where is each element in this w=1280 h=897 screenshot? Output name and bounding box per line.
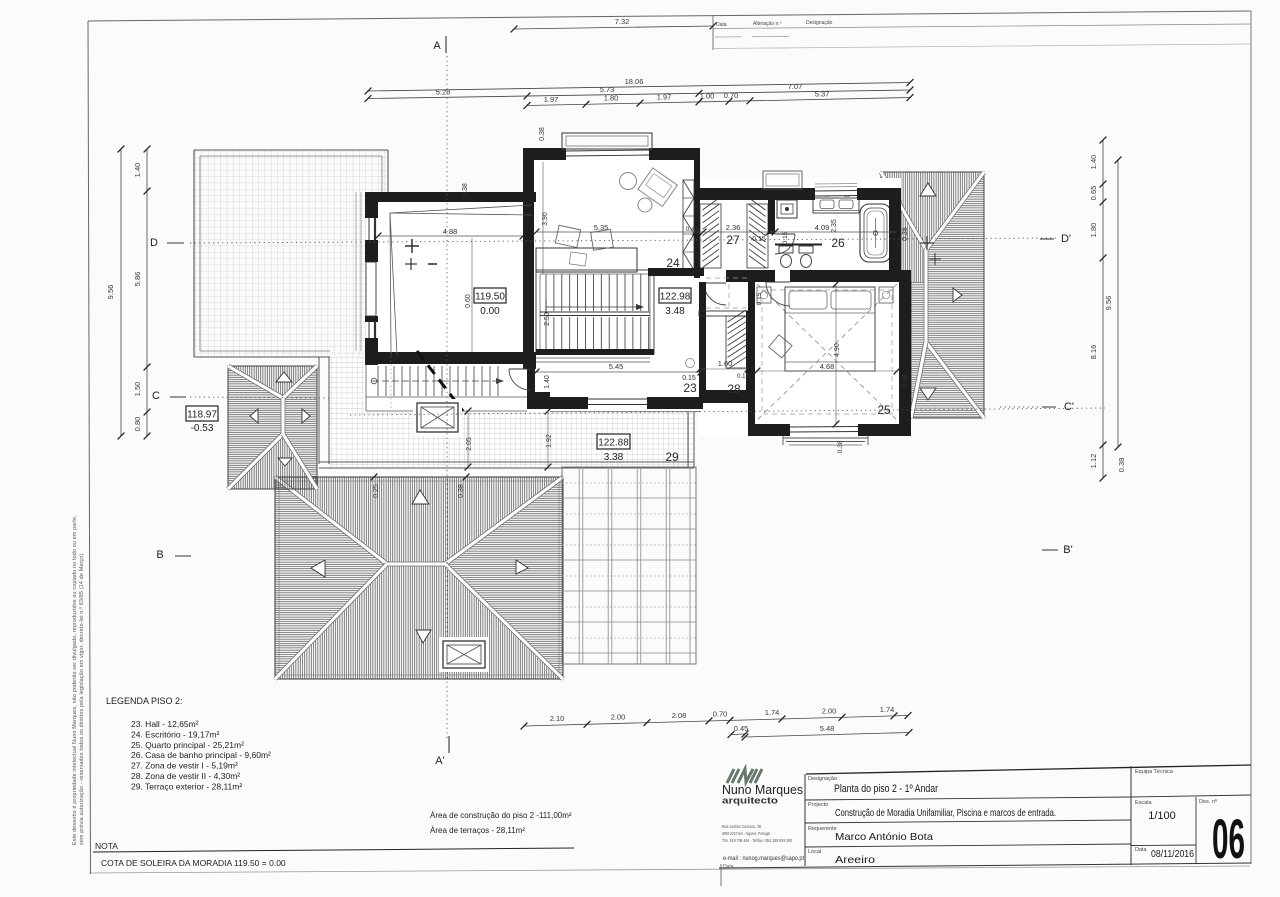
svg-text:5.35: 5.35 (594, 223, 609, 232)
svg-text:1.50: 1.50 (133, 382, 142, 397)
svg-text:-0.53: -0.53 (191, 423, 214, 434)
svg-text:9.56: 9.56 (1104, 296, 1113, 311)
svg-text:0.45: 0.45 (734, 724, 749, 733)
svg-text:0.65: 0.65 (1089, 186, 1098, 201)
svg-text:C: C (152, 390, 160, 402)
svg-text:28: 28 (727, 382, 741, 396)
svg-text:0.15: 0.15 (752, 236, 766, 243)
svg-text:25: 25 (877, 403, 891, 417)
svg-text:06: 06 (1212, 807, 1245, 870)
svg-text:0.38: 0.38 (1117, 458, 1126, 473)
svg-text:8000-233 Faro - Algarve, Portu: 8000-233 Faro - Algarve, Portugal (722, 831, 770, 837)
svg-text:NOTA: NOTA (95, 841, 118, 851)
svg-text:1.92: 1.92 (546, 434, 553, 448)
svg-text:Projecto: Projecto (808, 802, 828, 808)
svg-text:7.07: 7.07 (788, 82, 803, 91)
svg-text:2.08: 2.08 (672, 711, 687, 720)
svg-text:Designação: Designação (806, 20, 833, 26)
svg-text:1.40: 1.40 (544, 375, 551, 389)
svg-text:Rua Justino Cúmano, 39: Rua Justino Cúmano, 39 (722, 824, 761, 830)
svg-text:26: 26 (831, 236, 845, 250)
svg-text:0.38: 0.38 (462, 183, 469, 197)
svg-text:1.60: 1.60 (718, 359, 733, 368)
svg-text:Este desenho é propriedade int: Este desenho é propriedade intelectual N… (72, 515, 78, 845)
svg-text:0.38: 0.38 (902, 374, 909, 388)
svg-text:27. Zona de vestir I - 5,19m²: 27. Zona de vestir I - 5,19m² (131, 761, 238, 771)
svg-text:1.40: 1.40 (1089, 155, 1098, 170)
svg-text:2.05: 2.05 (466, 437, 473, 451)
svg-text:5.45: 5.45 (609, 362, 624, 371)
svg-text:B': B' (1063, 544, 1072, 556)
svg-text:28. Zona de vestir II - 4,30m²: 28. Zona de vestir II - 4,30m² (131, 771, 240, 781)
svg-text:Areeiro: Areeiro (835, 854, 875, 866)
svg-text:1.12: 1.12 (1089, 454, 1098, 469)
svg-text:0.38: 0.38 (458, 484, 465, 498)
svg-text:Equipa Técnica: Equipa Técnica (1135, 769, 1174, 775)
svg-text:23. Hall - 12,65m²: 23. Hall - 12,65m² (131, 719, 199, 729)
svg-text:Área de terraços - 28,11m²: Área de terraços - 28,11m² (430, 826, 525, 835)
svg-text:1/100: 1/100 (1148, 810, 1176, 822)
svg-text:Data: Data (1135, 847, 1148, 853)
svg-text:Designação: Designação (808, 776, 837, 782)
svg-text:Planta do piso 2 - 1º Andar: Planta do piso 2 - 1º Andar (834, 783, 938, 795)
svg-text:2.00: 2.00 (822, 707, 837, 716)
svg-text:1.40: 1.40 (133, 163, 142, 178)
svg-text:0.48: 0.48 (686, 226, 699, 233)
svg-text:0.18: 0.18 (737, 374, 749, 380)
svg-text:1.74: 1.74 (765, 708, 780, 717)
svg-text:0.70: 0.70 (724, 91, 739, 100)
svg-text:Local: Local (808, 849, 821, 855)
svg-text:24. Escritório - 19,17m²: 24. Escritório - 19,17m² (131, 729, 220, 739)
svg-text:Requerente: Requerente (808, 826, 837, 832)
svg-text:122.88: 122.88 (598, 438, 629, 449)
svg-text:D: D (150, 237, 158, 249)
svg-text:Data: Data (723, 864, 734, 870)
svg-text:29. Terraço exterior - 28,11m²: 29. Terraço exterior - 28,11m² (131, 781, 242, 791)
svg-text:Construção de Moradia Unifamil: Construção de Moradia Unifamiliar, Pisci… (835, 807, 1056, 819)
svg-text:23: 23 (683, 381, 697, 395)
svg-text:C': C' (1064, 401, 1074, 413)
svg-text:0.15: 0.15 (782, 231, 789, 244)
svg-text:Des. nº: Des. nº (1199, 798, 1217, 805)
svg-text:5.73: 5.73 (600, 85, 615, 94)
svg-text:0.15: 0.15 (682, 375, 696, 382)
svg-text:1.97: 1.97 (657, 93, 672, 102)
svg-text:arquitecto: arquitecto (722, 796, 778, 807)
svg-text:24: 24 (666, 256, 680, 270)
svg-text:0.15: 0.15 (756, 292, 763, 305)
svg-text:1.80: 1.80 (1089, 223, 1098, 238)
svg-text:0.38: 0.38 (837, 440, 844, 453)
svg-text:2.10: 2.10 (550, 714, 565, 723)
svg-text:1.97: 1.97 (544, 95, 559, 104)
svg-text:4.88: 4.88 (443, 227, 458, 236)
svg-text:4.68: 4.68 (820, 362, 835, 371)
svg-text:0.60: 0.60 (465, 294, 472, 308)
svg-text:3.48: 3.48 (665, 306, 685, 317)
svg-text:2.35: 2.35 (831, 219, 838, 233)
svg-text:3.90: 3.90 (542, 212, 549, 226)
svg-text:4.90: 4.90 (834, 343, 841, 357)
svg-text:Escala: Escala (1135, 800, 1152, 806)
svg-text:B: B (156, 549, 163, 561)
svg-text:119.50: 119.50 (475, 292, 505, 303)
svg-text:Alteração n.º: Alteração n.º (753, 21, 782, 27)
svg-text:08/11/2016: 08/11/2016 (1151, 849, 1194, 860)
svg-text:Tlm. 916 796 464 - Tel/fax +35: Tlm. 916 796 464 - Tel/fax +351 289 829 … (722, 838, 792, 844)
svg-text:1.00: 1.00 (700, 92, 715, 101)
svg-text:Área de construção do piso 2 -: Área de construção do piso 2 -111,00m² (430, 811, 572, 820)
svg-text:29: 29 (665, 450, 679, 464)
svg-text:5.28: 5.28 (436, 87, 451, 96)
svg-text:Marco António Bota: Marco António Bota (835, 831, 933, 843)
svg-text:A': A' (435, 755, 444, 767)
svg-text:0.25: 0.25 (373, 484, 380, 498)
svg-text:118.97: 118.97 (187, 410, 217, 421)
svg-text:26. Casa de banho principal -: 26. Casa de banho principal - 9,60m² (131, 750, 271, 760)
svg-text:9.56: 9.56 (106, 285, 115, 300)
svg-text:2.00: 2.00 (611, 712, 626, 721)
svg-text:1.74: 1.74 (880, 705, 895, 714)
svg-text:0.80: 0.80 (133, 417, 142, 432)
svg-text:COTA DE SOLEIRA DA MORADIA 11: COTA DE SOLEIRA DA MORADIA 119.50 = 0.00 (101, 858, 286, 868)
svg-text:A: A (433, 40, 441, 52)
svg-text:5.86: 5.86 (133, 272, 142, 287)
svg-text:7.32: 7.32 (615, 17, 630, 26)
svg-text:Data: Data (716, 22, 727, 28)
svg-text:0.38: 0.38 (539, 127, 546, 141)
svg-text:122.98: 122.98 (660, 292, 691, 303)
svg-text:0.70: 0.70 (713, 710, 728, 719)
svg-text:1.80: 1.80 (604, 94, 619, 103)
svg-text:0.38: 0.38 (902, 227, 909, 241)
svg-text:2.50: 2.50 (544, 312, 551, 326)
svg-text:27: 27 (726, 233, 740, 247)
svg-text:e-mail : nunog.marques@sapo.pt: e-mail : nunog.marques@sapo.pt (723, 855, 804, 862)
svg-text:5.48: 5.48 (820, 724, 835, 733)
svg-text:0.00: 0.00 (480, 306, 500, 317)
svg-text:2.36: 2.36 (726, 223, 741, 232)
svg-text:D': D' (1061, 233, 1071, 245)
svg-text:8.16: 8.16 (1089, 345, 1098, 360)
svg-text:3.38: 3.38 (604, 452, 624, 463)
svg-text:25. Quarto principal - 25,21m: 25. Quarto principal - 25,21m² (131, 740, 244, 750)
svg-text:LEGENDA PISO 2:: LEGENDA PISO 2: (106, 696, 183, 706)
svg-text:18.06: 18.06 (625, 77, 644, 86)
svg-text:4.09: 4.09 (815, 223, 830, 232)
svg-text:sem prévia autorização - reser: sem prévia autorização - reservados todo… (79, 554, 85, 845)
svg-text:5.37: 5.37 (815, 89, 830, 98)
